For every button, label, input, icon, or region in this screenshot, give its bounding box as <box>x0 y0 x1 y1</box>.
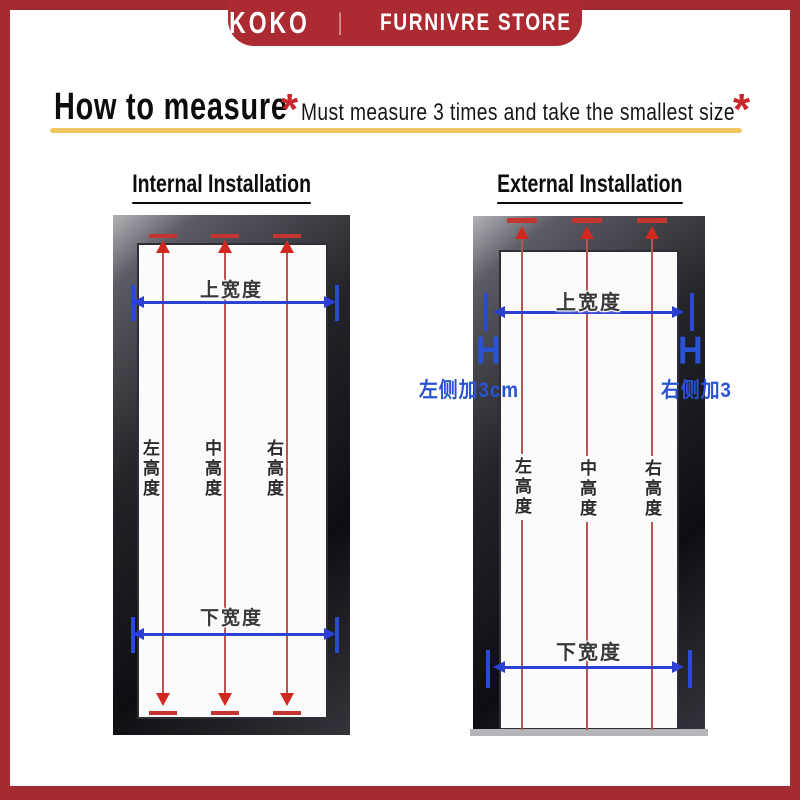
measure-end-mark <box>211 711 239 715</box>
external-installation-diagram: 上宽度 H H 左侧加3cm 右侧加3 左高度 中高度 右高度 下宽度 <box>473 216 705 736</box>
gold-underline <box>50 128 742 133</box>
measure-start-mark <box>507 218 537 223</box>
measure-start-mark <box>637 218 667 223</box>
top-width-label: 上宽度 <box>473 286 705 315</box>
right-height-label: 右高度 <box>265 439 282 499</box>
internal-installation-diagram: 上宽度 左高度 中高度 右高度 下宽度 <box>113 215 350 735</box>
store-banner: KOKO | FURNIVRE STORE <box>228 0 582 46</box>
left-height-label: 左高度 <box>141 439 158 499</box>
arrow-down-icon <box>218 693 232 706</box>
floor-sill <box>470 729 708 736</box>
asterisk-icon: * <box>281 88 298 132</box>
external-installation-heading: External Installation <box>460 170 720 204</box>
door-opening <box>137 243 328 719</box>
middle-height-label: 中高度 <box>203 439 220 499</box>
measure-start-mark <box>273 234 301 238</box>
middle-height-label: 中高度 <box>577 456 596 522</box>
right-side-add-note: 右侧加3 <box>661 374 732 404</box>
left-side-add-note: 左侧加3cm <box>419 374 519 404</box>
measure-start-mark <box>572 218 602 223</box>
internal-installation-heading: Internal Installation <box>92 170 352 204</box>
arrow-up-icon <box>515 226 529 239</box>
right-height-label: 右高度 <box>642 456 661 522</box>
page-border-bottom <box>0 786 800 800</box>
measure-end-mark <box>149 711 177 715</box>
arrow-up-icon <box>156 240 170 253</box>
measure-note: Must measure 3 times and take the smalle… <box>301 99 735 127</box>
brand-name: KOKO <box>229 5 310 41</box>
arrow-up-icon <box>218 240 232 253</box>
bottom-width-arrow <box>143 633 325 636</box>
arrow-down-icon <box>156 693 170 706</box>
measure-start-mark <box>149 234 177 238</box>
arrow-up-icon <box>280 240 294 253</box>
asterisk-icon: * <box>733 88 750 132</box>
banner-divider: | <box>338 9 341 37</box>
arrow-up-icon <box>645 226 659 239</box>
bottom-width-arrow <box>505 666 673 669</box>
arrow-down-icon <box>280 693 294 706</box>
top-width-label: 上宽度 <box>113 275 350 302</box>
add-width-mark: H <box>476 331 501 370</box>
page-border-right <box>790 0 800 800</box>
left-height-label: 左高度 <box>512 454 531 520</box>
measure-end-mark <box>273 711 301 715</box>
page-title: How to measure <box>54 86 288 129</box>
page-border-left <box>0 0 10 800</box>
arrow-up-icon <box>580 226 594 239</box>
add-width-mark: H <box>678 331 703 370</box>
product-infographic: KOKO | FURNIVRE STORE How to measure * M… <box>0 0 800 800</box>
measure-start-mark <box>211 234 239 238</box>
bottom-width-label: 下宽度 <box>113 603 350 630</box>
bottom-width-label: 下宽度 <box>473 636 705 665</box>
store-name: FURNIVRE STORE <box>380 9 572 37</box>
